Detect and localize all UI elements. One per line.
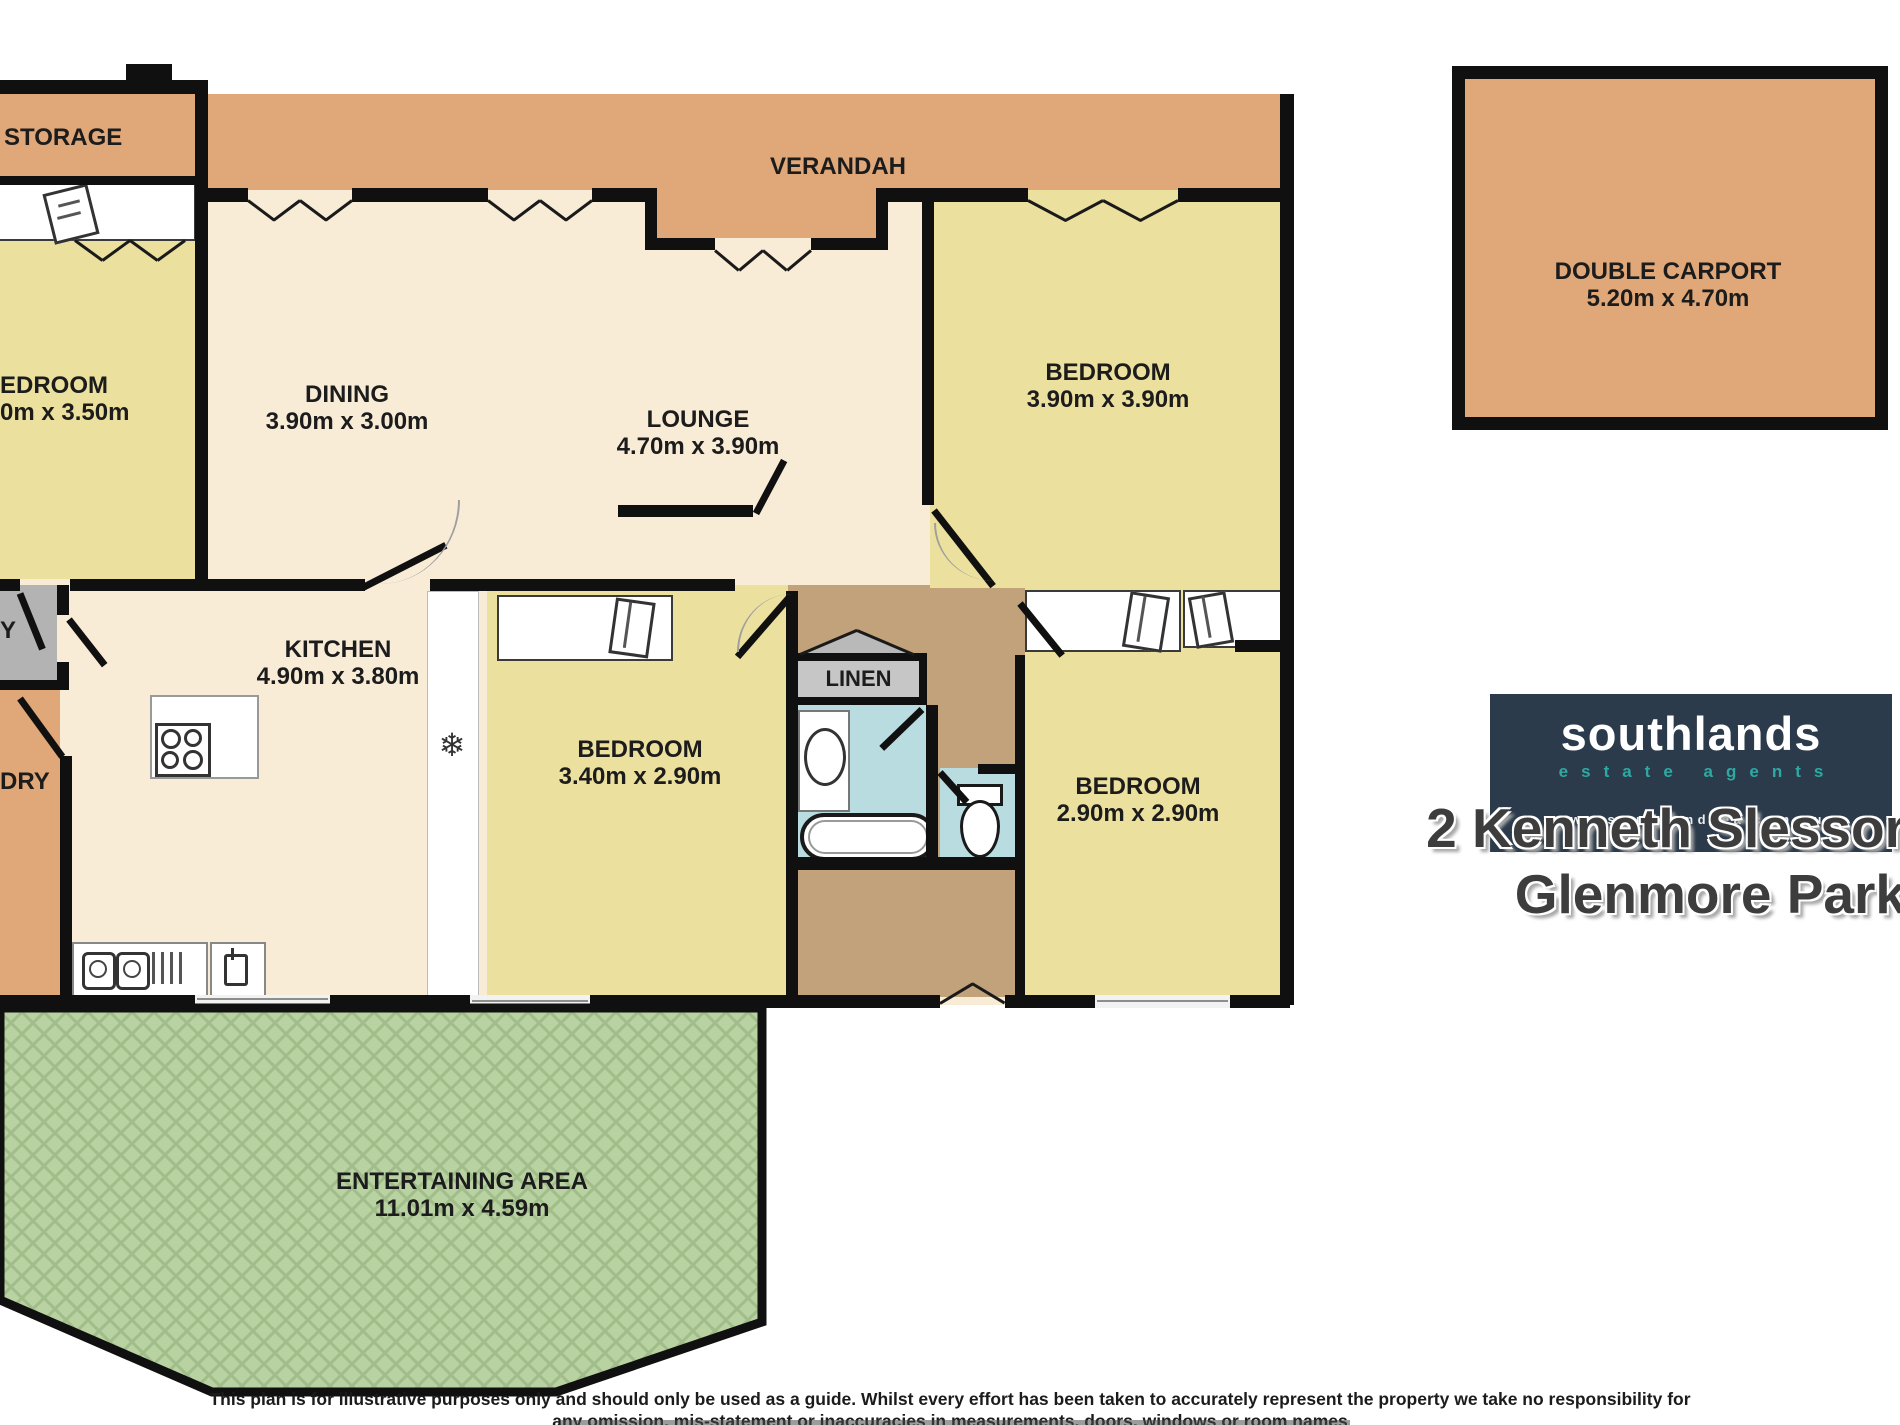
room-label-bedroom-top-right: BEDROOM3.90m x 3.90m bbox=[1027, 359, 1190, 413]
address-line-1: 2 Kenneth Slessor bbox=[1426, 796, 1900, 860]
room-label-entertaining: ENTERTAINING AREA11.01m x 4.59m bbox=[336, 1168, 588, 1222]
room-label-bedroom-bottom-right: BEDROOM2.90m x 2.90m bbox=[1057, 773, 1220, 827]
room-label-carport: DOUBLE CARPORT5.20m x 4.70m bbox=[1555, 258, 1782, 312]
room-label-storage: STORAGE bbox=[4, 124, 122, 151]
room-label-bedroom-left: EDROOM0m x 3.50m bbox=[0, 372, 129, 426]
logo-wordmark: southlands bbox=[1490, 706, 1892, 761]
address-line-2: Glenmore Park bbox=[1515, 862, 1900, 926]
logo-tagline: estate agents bbox=[1490, 762, 1892, 782]
room-label-kitchen: KITCHEN4.90m x 3.80m bbox=[257, 636, 420, 690]
carport bbox=[1452, 66, 1888, 430]
room-label-bedroom-middle: BEDROOM3.40m x 2.90m bbox=[559, 736, 722, 790]
room-label-lounge: LOUNGE4.70m x 3.90m bbox=[617, 406, 780, 460]
room-label-dining: DINING3.90m x 3.00m bbox=[266, 381, 429, 435]
room-label-entry: Y bbox=[0, 617, 16, 644]
floorplan-canvas: ❄ bbox=[0, 0, 1900, 1425]
room-label-linen: LINEN bbox=[790, 665, 927, 692]
room-label-laundry: DRY bbox=[0, 768, 50, 795]
room-label-verandah: VERANDAH bbox=[770, 153, 906, 180]
cropped-bottom-bar bbox=[560, 1420, 1350, 1425]
disclaimer-line-1: This plan is for illustrative purposes o… bbox=[0, 1389, 1900, 1410]
